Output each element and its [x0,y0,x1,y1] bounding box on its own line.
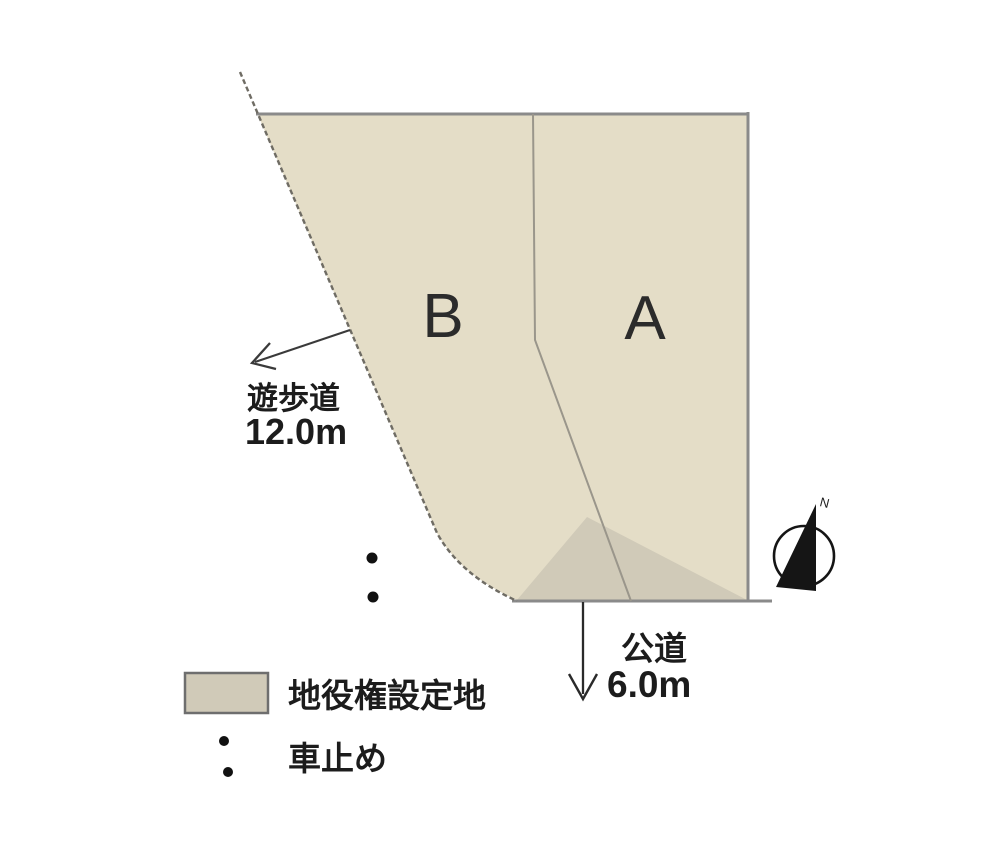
promenade-annotation: 遊歩道 12.0m [245,330,350,452]
promenade-arrow-line [255,330,350,362]
public-road-annotation: 公道 6.0m [569,602,691,705]
easement-swatch [185,673,268,713]
car-stop-legend-dot [223,767,233,777]
car-stop-legend-label: 車止め [288,740,387,777]
compass-north-label: N [818,494,831,511]
legend: 地役権設定地 車止め [185,673,486,777]
north-compass: N [774,494,834,591]
plot-map-drawing: B A 遊歩道 12.0m 公道 6.0m N [0,0,1000,863]
parcel-b-label: B [422,282,463,351]
road-name-label: 公道 [621,630,687,667]
car-stop-legend-dot [219,736,229,746]
land-parcel-shape [258,115,748,600]
car-stop-dot [367,553,378,564]
parcel-a-label: A [624,284,666,353]
promenade-width-label: 12.0m [245,411,347,452]
car-stop-dots [367,553,379,603]
road-width-label: 6.0m [607,664,691,705]
car-stop-dot [368,592,379,603]
easement-legend-label: 地役権設定地 [288,677,486,714]
plot-map: B A 遊歩道 12.0m 公道 6.0m N [0,0,1000,863]
